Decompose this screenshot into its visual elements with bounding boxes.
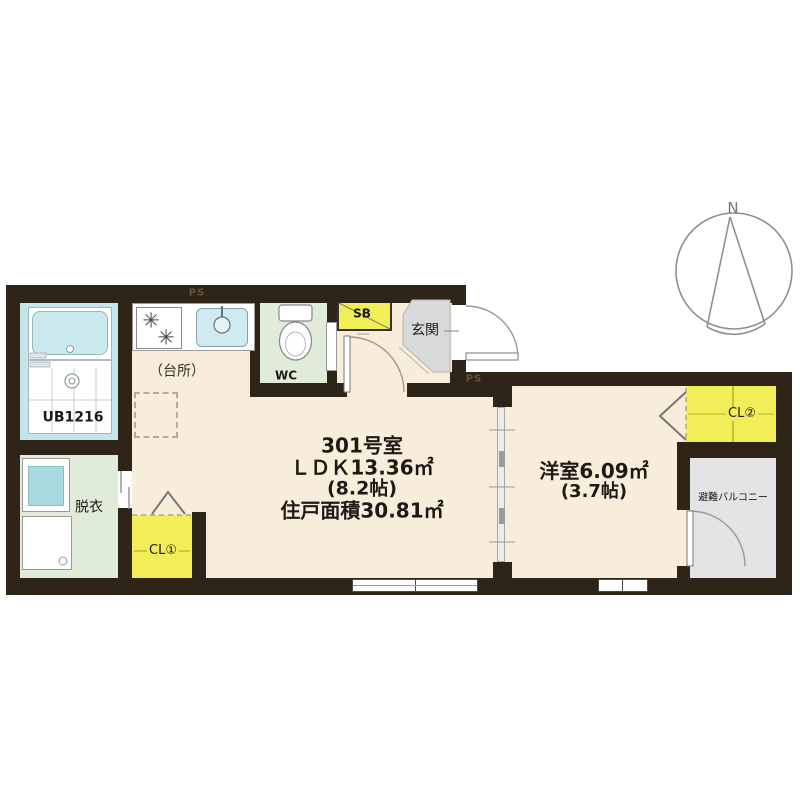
pipe-space-label-top: PS xyxy=(189,288,206,299)
compass-north-label: N xyxy=(727,200,738,217)
sliding-partition-overlap xyxy=(499,508,505,524)
wall-dressing-east-upper xyxy=(118,455,132,471)
wall-closet1-east xyxy=(192,512,206,595)
wall-right xyxy=(776,372,792,595)
ldk-window xyxy=(352,579,478,592)
balcony-area xyxy=(690,458,776,578)
ldk-text-block: 301号室 ＬＤＫ13.36㎡ (8.2帖) 住戸面積30.81㎡ xyxy=(280,435,443,522)
washer-pan xyxy=(22,516,72,570)
dressing-room-label: 脱衣 xyxy=(75,500,103,515)
wc-label: WC xyxy=(275,369,297,382)
balcony-label: 避難バルコニー xyxy=(698,493,768,504)
wc-door xyxy=(326,322,337,371)
room-number: 301号室 xyxy=(280,435,443,457)
western-area: 洋室6.09㎡ xyxy=(539,460,648,482)
wall-partition-stub-bottom xyxy=(493,562,512,582)
refrigerator-space xyxy=(134,392,178,438)
ldk-area: ＬＤＫ13.36㎡ xyxy=(280,457,443,479)
kitchen-sink xyxy=(196,308,248,347)
western-room-text-block: 洋室6.09㎡ (3.7帖) xyxy=(539,460,648,502)
pipe-space-label-right: PS xyxy=(466,374,483,385)
western-tatami: (3.7帖) xyxy=(539,482,648,502)
wall-frontdoor-jamb-top xyxy=(452,285,466,305)
western-window xyxy=(598,579,648,592)
entrance-label: 玄関 xyxy=(411,323,439,338)
front-door-opening xyxy=(452,305,466,360)
dressing-door-opening xyxy=(118,471,132,508)
wall-dressing-east-lower xyxy=(118,508,132,595)
wall-wc-east-lower xyxy=(327,371,337,397)
closet1-label: CL① xyxy=(147,544,179,558)
sliding-partition xyxy=(497,407,505,562)
bathtub xyxy=(32,311,108,355)
wall-top xyxy=(6,285,466,303)
wall-partition-stub-top xyxy=(493,386,512,407)
total-area: 住戸面積30.81㎡ xyxy=(280,499,443,521)
kitchen-label: （台所） xyxy=(149,364,205,379)
balcony-door-opening xyxy=(677,510,690,566)
front-door xyxy=(466,306,518,360)
shoe-box-label: SB xyxy=(353,307,371,320)
wall-western-east-lower xyxy=(677,566,690,582)
wall-closet2-south xyxy=(677,442,792,458)
wall-ub-south xyxy=(6,440,132,455)
closet2-label: CL② xyxy=(726,407,758,421)
floor-plan-page: ✳ ✳ xyxy=(0,0,800,800)
wall-western-east-upper xyxy=(677,458,690,510)
window-mid-rail xyxy=(353,585,477,586)
unit-bath-label: UB1216 xyxy=(42,410,103,425)
burner-icon: ✳ xyxy=(157,326,175,349)
wall-wc-east-upper xyxy=(327,303,337,322)
wall-ub-east xyxy=(118,285,132,455)
sliding-partition-overlap xyxy=(499,451,505,467)
window-mullion xyxy=(622,580,623,591)
washing-machine xyxy=(28,466,64,506)
ldk-tatami: (8.2帖) xyxy=(280,479,443,500)
compass xyxy=(676,213,792,334)
